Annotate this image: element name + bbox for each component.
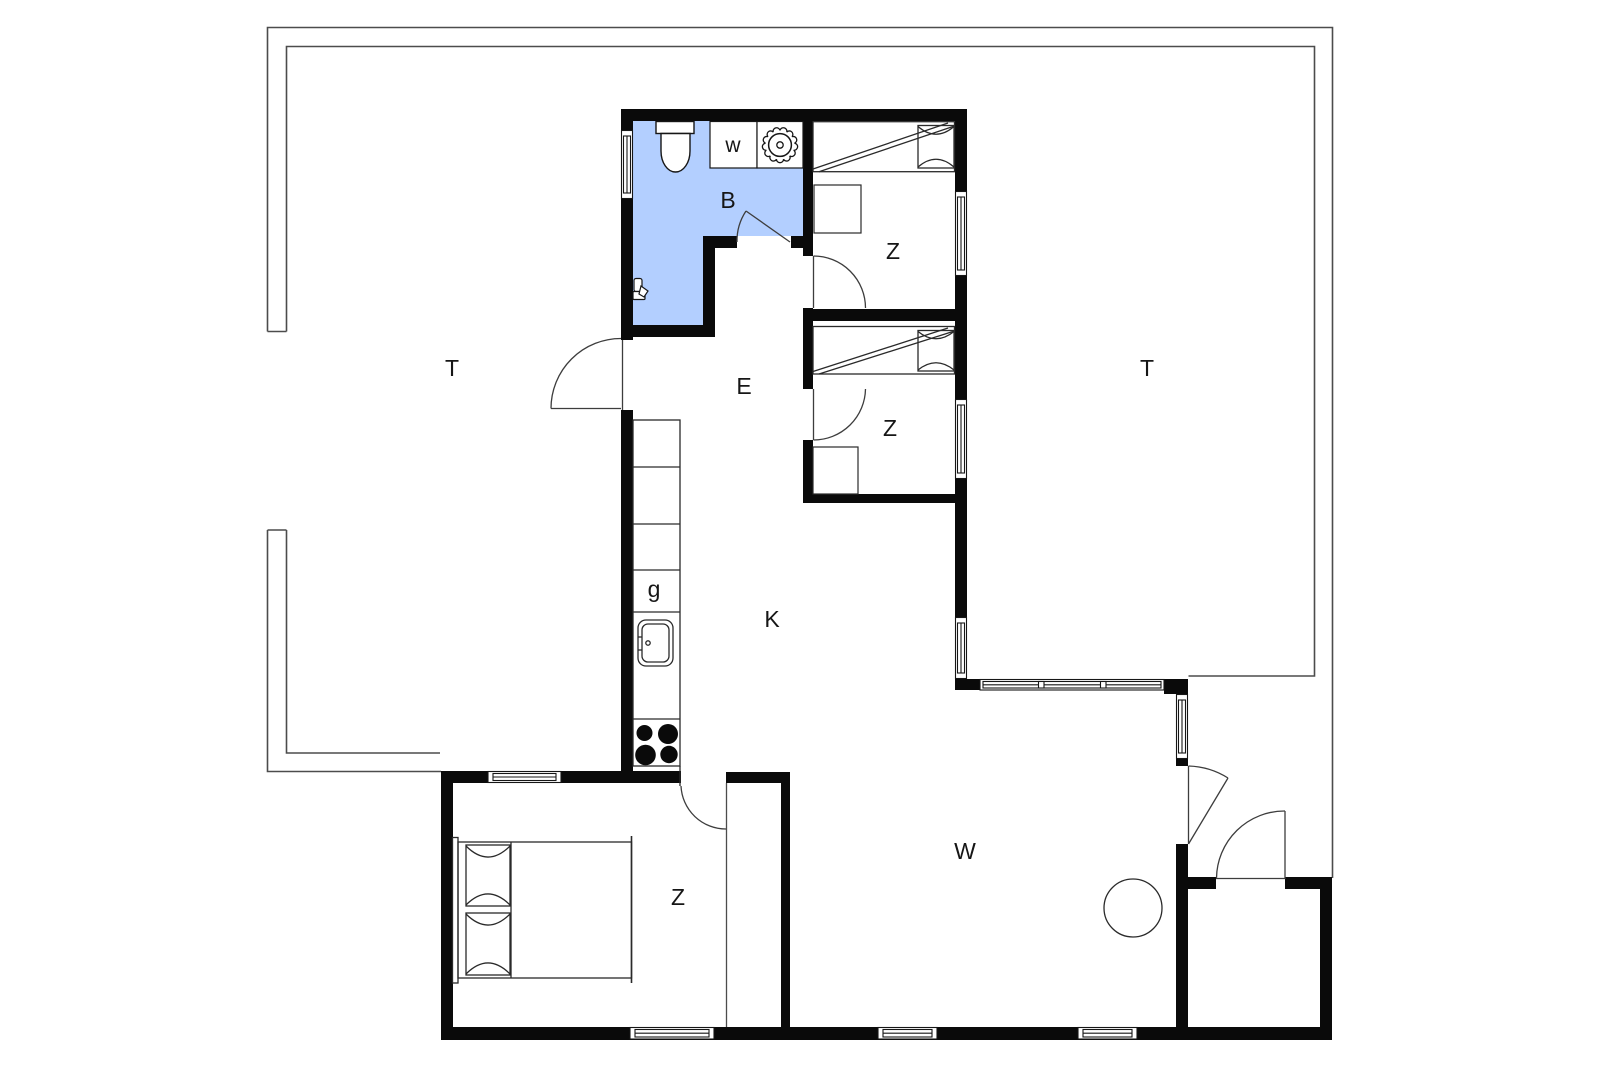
svg-text:E: E [736, 373, 751, 399]
svg-text:K: K [764, 606, 780, 632]
svg-text:w: w [724, 134, 741, 157]
svg-text:Z: Z [886, 238, 900, 264]
svg-text:T: T [1140, 355, 1154, 381]
svg-text:Z: Z [883, 415, 897, 441]
svg-text:W: W [954, 838, 976, 864]
svg-text:g: g [648, 576, 661, 602]
svg-text:B: B [720, 187, 735, 213]
svg-text:T: T [445, 355, 459, 381]
svg-text:Z: Z [671, 884, 685, 910]
